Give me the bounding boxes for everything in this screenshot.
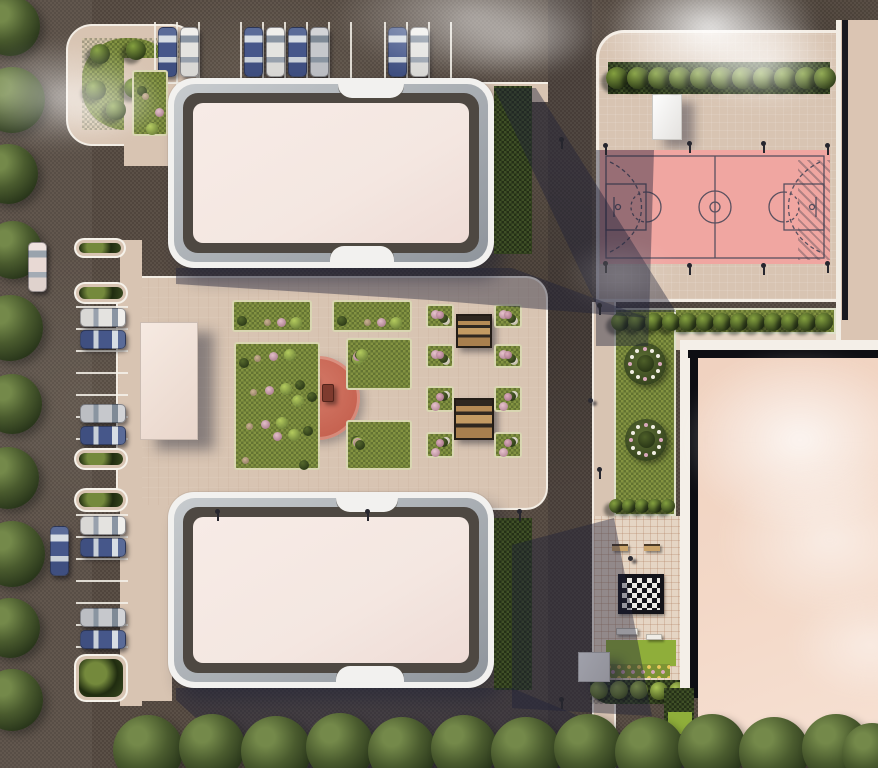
bottom-left-walkway <box>124 505 172 701</box>
site-plan-rendering: Aerial 3D site plan rendering of a resid… <box>0 0 878 768</box>
bleachers <box>798 160 830 260</box>
utility-shed <box>652 94 682 140</box>
bench <box>644 544 660 551</box>
apartment-building-north <box>168 78 494 268</box>
roof-notch <box>338 78 404 98</box>
pergola-south <box>454 398 494 440</box>
play-slide <box>280 389 305 404</box>
right-building-lawn-end <box>668 712 692 734</box>
roof-notch <box>336 492 398 512</box>
haze <box>560 240 680 310</box>
fog <box>40 70 170 140</box>
right-wall-dark-line <box>842 20 848 320</box>
roof-scoop <box>336 666 404 688</box>
cloud <box>690 20 840 110</box>
pergola-north <box>456 314 492 348</box>
building-roof <box>193 517 469 663</box>
roof-scoop <box>330 246 394 268</box>
play-tower <box>302 376 316 402</box>
game-table <box>646 634 662 640</box>
cloud <box>430 0 600 80</box>
apartment-building-south <box>168 492 494 688</box>
right-building-white-edge-v <box>680 350 690 698</box>
right-building-white-edge-h <box>680 340 878 350</box>
small-building <box>140 322 198 440</box>
play-tower-small <box>322 384 334 402</box>
playground-circle <box>276 356 360 440</box>
building-roof <box>193 103 469 243</box>
